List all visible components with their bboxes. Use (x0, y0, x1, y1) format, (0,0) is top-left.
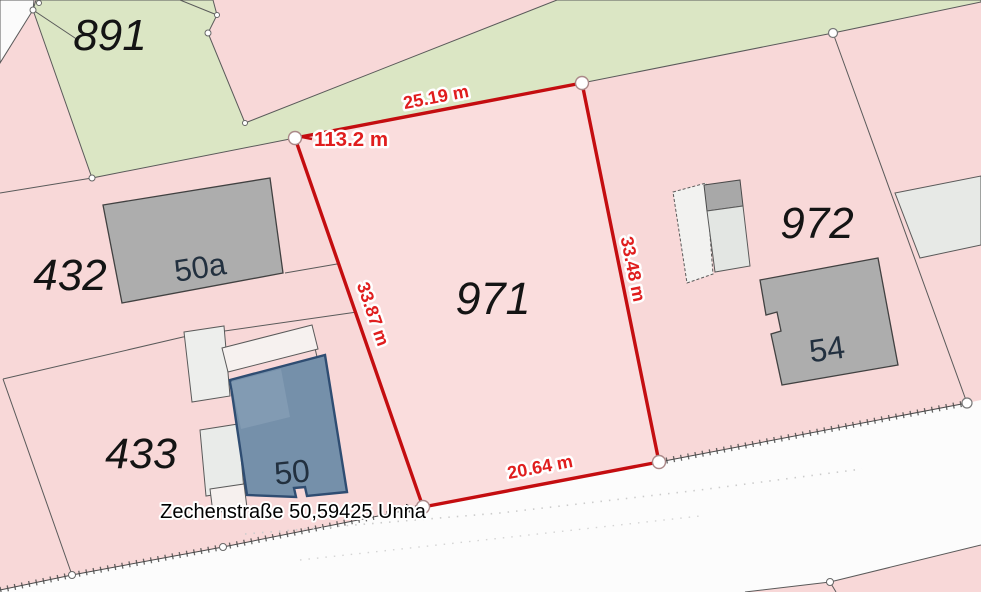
parcel-label-972: 972 (780, 199, 853, 248)
measure-total: 113.2 m (314, 128, 388, 151)
parcel-label-891: 891 (73, 11, 146, 60)
parcel-label-433: 433 (105, 430, 177, 478)
building-label-50: 50 (272, 452, 311, 492)
outbuilding-972-light (707, 206, 750, 272)
parcel-label-971: 971 (455, 273, 530, 324)
address-label: Zechenstraße 50,59425 Unna (160, 501, 427, 523)
parcel-label-432: 432 (33, 251, 106, 300)
outbuilding-433-upper (184, 326, 230, 402)
building-label-54: 54 (807, 329, 847, 370)
map-canvas: 891 432 433 971 972 50a 50 54 25.19 m 11… (0, 0, 981, 592)
cadastral-map: 891 432 433 971 972 50a 50 54 25.19 m 11… (0, 0, 981, 592)
